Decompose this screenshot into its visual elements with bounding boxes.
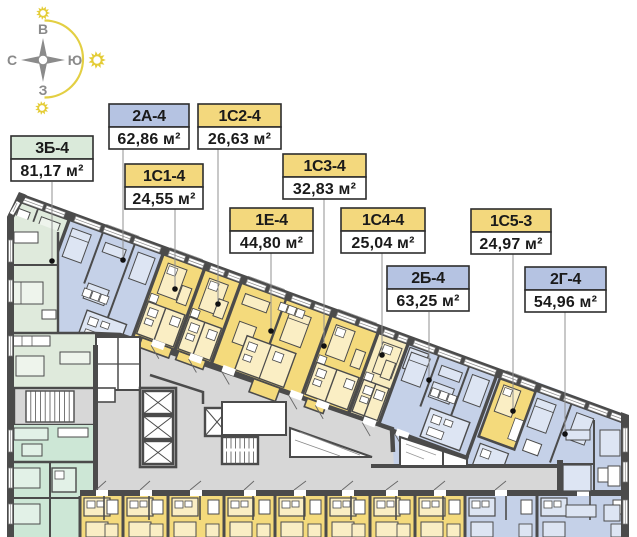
svg-text:1С3-4: 1С3-4: [303, 158, 345, 175]
svg-text:С: С: [7, 52, 17, 68]
svg-text:1С4-4: 1С4-4: [362, 212, 404, 229]
svg-text:1С1-4: 1С1-4: [143, 168, 185, 185]
svg-text:3Б-4: 3Б-4: [35, 140, 69, 157]
svg-text:24,55 м²: 24,55 м²: [132, 191, 195, 208]
svg-text:В: В: [38, 21, 48, 37]
svg-text:62,86 м²: 62,86 м²: [117, 131, 180, 148]
svg-text:24,97 м²: 24,97 м²: [479, 236, 542, 253]
svg-text:1С5-3: 1С5-3: [490, 213, 532, 230]
svg-text:2А-4: 2А-4: [132, 108, 166, 125]
svg-text:2Г-4: 2Г-4: [550, 271, 581, 288]
svg-text:26,63 м²: 26,63 м²: [208, 131, 271, 148]
svg-text:1Е-4: 1Е-4: [255, 212, 288, 229]
svg-text:25,04 м²: 25,04 м²: [351, 235, 414, 252]
svg-text:1С2-4: 1С2-4: [218, 108, 260, 125]
svg-text:З: З: [39, 82, 48, 98]
svg-text:81,17 м²: 81,17 м²: [20, 163, 83, 180]
svg-text:32,83 м²: 32,83 м²: [293, 181, 356, 198]
svg-text:44,80 м²: 44,80 м²: [240, 235, 303, 252]
svg-text:63,25 м²: 63,25 м²: [396, 293, 459, 310]
svg-text:2Б-4: 2Б-4: [411, 270, 445, 287]
svg-text:54,96 м²: 54,96 м²: [534, 294, 597, 311]
svg-text:Ю: Ю: [68, 52, 82, 68]
